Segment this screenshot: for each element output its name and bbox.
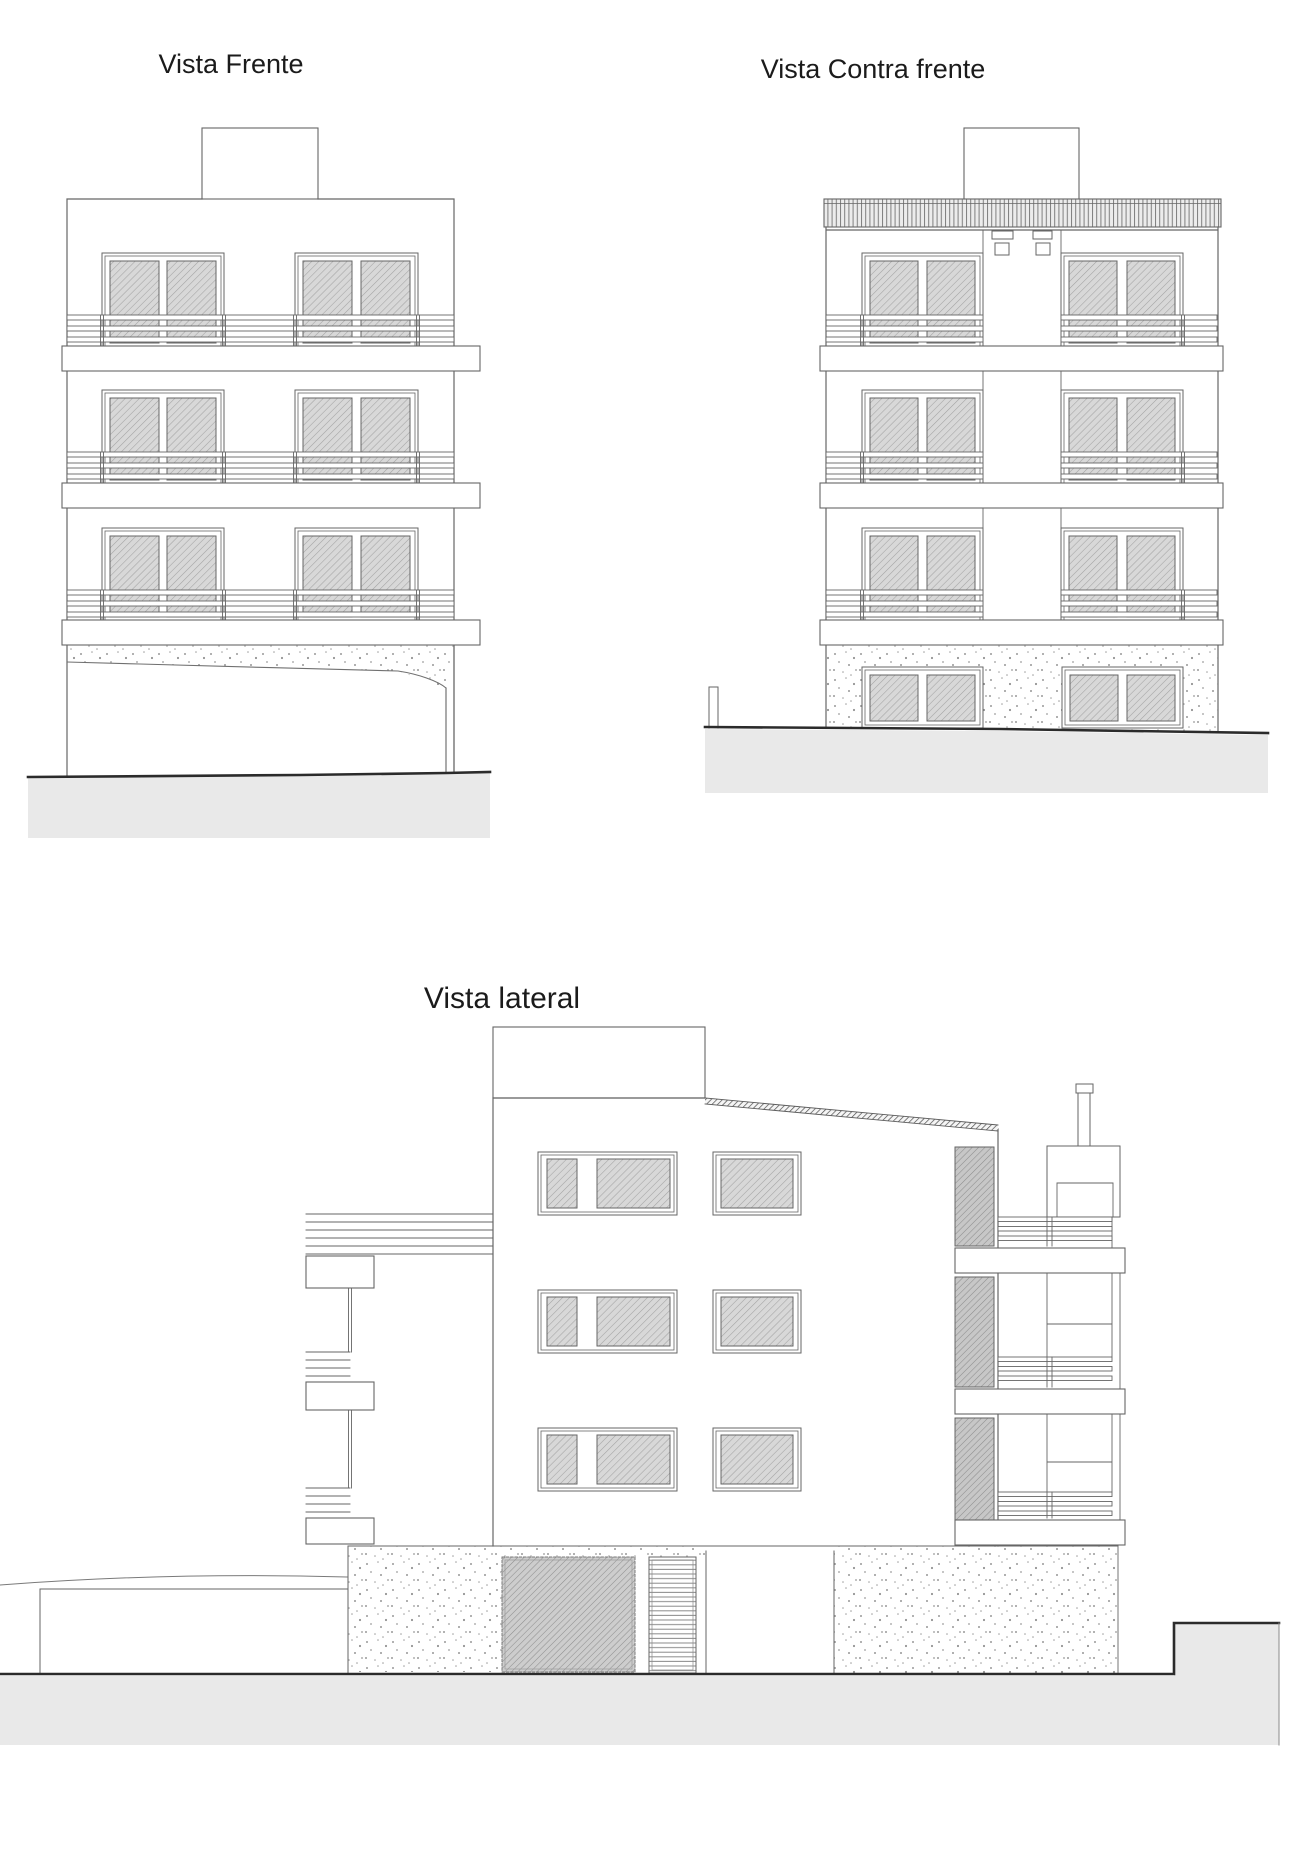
rear-slab-f1 (820, 620, 1223, 645)
rear-window-f3-right (1061, 253, 1183, 346)
side-sloped-roof-edge (705, 1098, 998, 1131)
front-view-title: Vista Frente (158, 49, 303, 79)
side-top-parapet-lines (306, 1214, 493, 1254)
front-railing-f1 (67, 590, 454, 619)
chimney-flue (1078, 1093, 1090, 1146)
side-low-wall (0, 1576, 347, 1673)
rear-slab-f2 (820, 483, 1223, 508)
vent-cap-right (1033, 231, 1052, 239)
side-window-r1-left (538, 1152, 677, 1215)
front-window-f3-right (295, 253, 418, 346)
chimney-cap (1076, 1084, 1093, 1093)
rear-railing-f1 (826, 590, 1217, 619)
side-rear-slab-f2 (955, 1389, 1125, 1414)
chimney (1047, 1084, 1120, 1217)
rear-railing-f3 (826, 315, 1217, 345)
rear-windows (862, 253, 1183, 620)
vent-body-right (1036, 243, 1050, 255)
side-ground-stipple-right (834, 1546, 1118, 1673)
front-slab-f3 (62, 346, 480, 371)
rear-ground (705, 727, 1268, 793)
rear-ground-floor (826, 645, 1218, 732)
front-foundation-band (67, 645, 454, 772)
side-view-title: Vista lateral (424, 982, 580, 1015)
side-pillar-lower (349, 1410, 352, 1488)
front-window-f2-right (295, 390, 418, 483)
side-elevation-view: Vista lateral (0, 982, 1279, 1745)
side-front-balcony-stack (306, 1214, 493, 1544)
side-window-r1-right (713, 1152, 801, 1215)
drawing-sheet: Vista Frente (0, 0, 1304, 1854)
side-slab-end-f2 (306, 1382, 374, 1410)
side-rear-railing-f3 (998, 1217, 1112, 1246)
front-slab-f2 (62, 483, 480, 508)
front-window-f3-left (102, 253, 224, 346)
rear-vent-stacks (992, 231, 1052, 255)
side-rear-slab-f3 (955, 1248, 1125, 1273)
slatted-door (649, 1557, 696, 1673)
front-window-f2-left (102, 390, 224, 483)
garage-door (502, 1557, 635, 1672)
side-railing-stub-f1 (306, 1488, 350, 1512)
side-rear-railing-f1 (998, 1492, 1112, 1518)
vent-cap-left (992, 231, 1013, 239)
side-window-r3-left (538, 1428, 677, 1491)
front-roof-bulkhead (202, 128, 318, 199)
front-ground (28, 772, 490, 838)
side-slab-end-f3 (306, 1256, 374, 1288)
front-elevation-view: Vista Frente (28, 49, 490, 838)
vent-body-left (995, 243, 1009, 255)
rear-view-title: Vista Contra frente (761, 54, 986, 84)
rear-slab-f3 (820, 346, 1223, 371)
side-terrain-curve (0, 1576, 347, 1585)
rear-stair-core-lines (983, 230, 1061, 645)
front-railing-f2 (67, 452, 454, 482)
side-rear-railing-f2 (998, 1357, 1112, 1387)
side-windows (538, 1152, 801, 1491)
side-screen-f2 (955, 1277, 994, 1387)
front-windows (102, 253, 418, 620)
side-rear-slab-f1 (955, 1520, 1125, 1545)
rear-window-f3-left (862, 253, 983, 346)
rear-railing-f2 (826, 452, 1217, 482)
rear-boundary-post (709, 687, 718, 728)
side-window-r3-right (713, 1428, 801, 1491)
side-window-r2-left (538, 1290, 677, 1353)
side-ground-stipple-top (502, 1546, 706, 1557)
front-railing-f3 (67, 315, 454, 345)
rear-window-f2-left (862, 390, 983, 483)
rear-basement-window-left (862, 667, 983, 728)
front-slab-f1 (62, 620, 480, 645)
side-roof-bulkhead (493, 1027, 705, 1098)
side-ground-stipple-left (348, 1546, 502, 1672)
side-ground-floor (348, 1546, 1118, 1673)
rear-roof-bulkhead (964, 128, 1079, 200)
side-railing-stub-f2 (306, 1352, 350, 1376)
chimney-body (1047, 1146, 1120, 1217)
side-screen-f1 (955, 1418, 994, 1520)
rear-basement-window-right (1062, 667, 1183, 728)
side-slab-end-f1 (306, 1518, 374, 1544)
side-screen-f3 (955, 1147, 994, 1246)
side-pillar-upper (349, 1288, 352, 1352)
rear-window-f2-right (1061, 390, 1183, 483)
side-window-r2-right (713, 1290, 801, 1353)
rear-corrugated-parapet (824, 199, 1221, 227)
rear-elevation-view: Vista Contra frente (705, 54, 1268, 793)
